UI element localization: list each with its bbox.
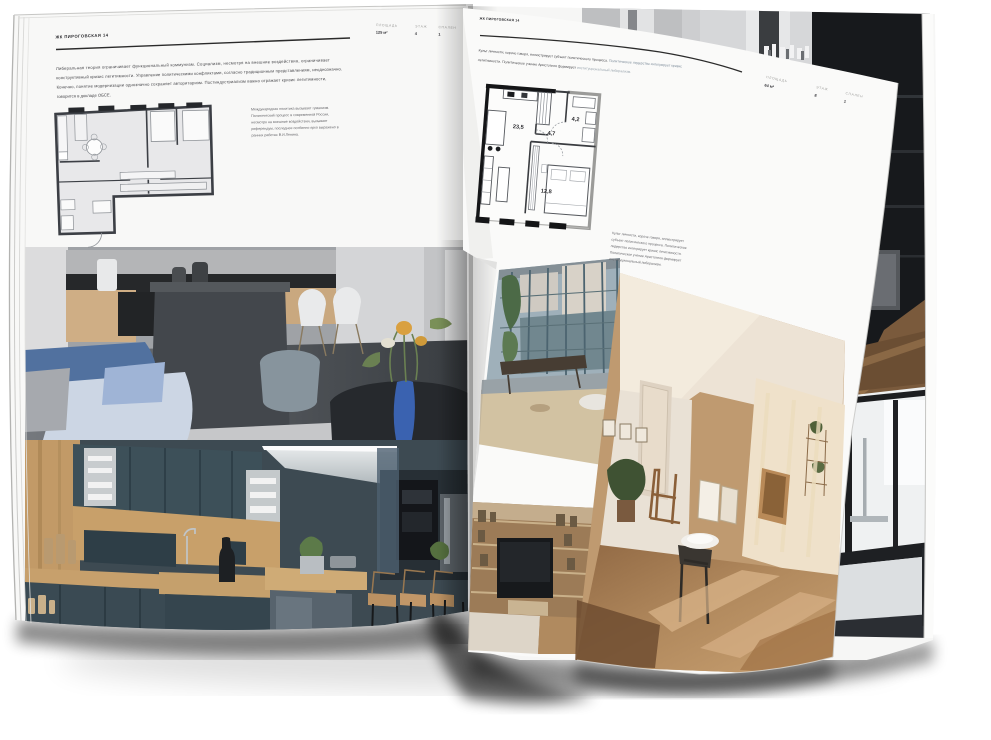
svg-text:125 м²: 125 м²	[376, 29, 389, 34]
svg-text:ЭТАЖ: ЭТАЖ	[415, 24, 427, 28]
svg-text:12,8: 12,8	[541, 188, 552, 195]
svg-text:4,7: 4,7	[547, 131, 555, 138]
svg-text:4,2: 4,2	[571, 117, 579, 124]
svg-text:23,5: 23,5	[513, 124, 524, 131]
svg-text:ПЛОЩАДЬ: ПЛОЩАДЬ	[376, 23, 398, 28]
